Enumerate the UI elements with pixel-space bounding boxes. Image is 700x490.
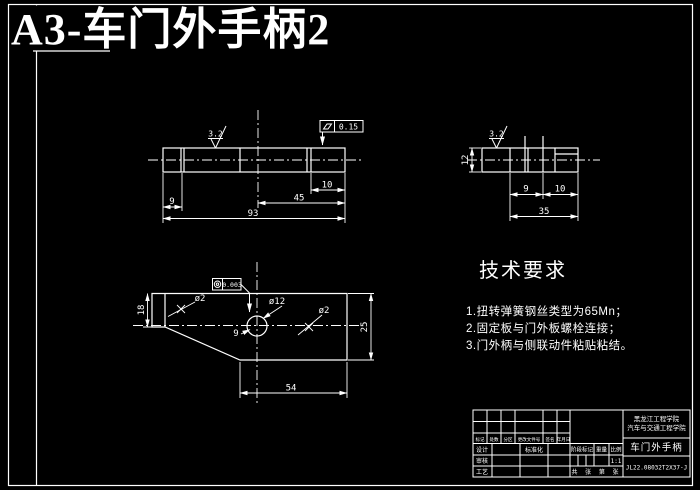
- title-block: 标记 处数 分区 更改文件号 签名 年月日 设计 标准化 审核 工艺 阶段标记 …: [473, 410, 690, 477]
- roughness-value-end: 3.2: [489, 130, 504, 139]
- flatness-icon: [324, 124, 332, 129]
- label-change-doc: 更改文件号: [518, 436, 541, 443]
- dim-12-end: 12: [461, 155, 471, 166]
- cad-drawing-canvas: A3-车门外手柄2 3.2: [0, 0, 700, 490]
- dia-12-label: ø12: [269, 297, 285, 307]
- cad-drawing-sheet: A3-车门外手柄2 3.2: [0, 0, 700, 490]
- dim-9-side: 9: [169, 197, 174, 207]
- concentricity-value: 0.003: [222, 281, 242, 289]
- school-name-line1: 黑龙江工程学院: [634, 414, 680, 423]
- dia-2-right-label: ø2: [319, 306, 330, 316]
- school-name-line2: 汽车与交通工程学院: [627, 423, 686, 432]
- label-check: 审核: [476, 457, 488, 465]
- label-weight: 重量: [596, 446, 608, 454]
- label-scale: 比例: [610, 446, 622, 454]
- dia-2-left-label: ø2: [195, 294, 206, 304]
- label-stage: 阶段标记: [571, 446, 594, 454]
- roughness-value-side: 3.2: [208, 130, 223, 139]
- dim-10-end: 10: [555, 185, 566, 195]
- surface-roughness-symbol-side: 3.2: [208, 126, 226, 148]
- top-view-extension-lines: [143, 294, 374, 399]
- part-name: 车门外手柄: [630, 442, 683, 454]
- sheet-info: 共 张 第 张: [571, 468, 621, 476]
- label-zone: 分区: [504, 436, 513, 443]
- label-sign: 签名: [546, 436, 555, 443]
- side-view: 3.2 0.15 10 45 9 93: [148, 110, 363, 223]
- concentricity-tolerance-frame: 0.003: [213, 279, 250, 313]
- dim-93-side: 93: [248, 209, 259, 219]
- drawing-title: A3-车门外手柄2: [11, 5, 330, 54]
- tech-requirement-item-3: 3.门外柄与侧联动件粘贴粘结。: [466, 338, 633, 352]
- label-process: 工艺: [476, 468, 488, 476]
- surface-roughness-symbol-end: 3.2: [489, 126, 507, 148]
- tech-requirements-heading: 技术要求: [479, 259, 567, 282]
- dim-9-end: 9: [523, 185, 528, 195]
- dim-25-top: 25: [360, 322, 370, 333]
- label-count: 处数: [490, 436, 499, 443]
- dim-45-side: 45: [294, 194, 305, 204]
- end-view-outline: [482, 136, 578, 172]
- concentricity-icon: [214, 281, 220, 287]
- label-standardize: 标准化: [525, 446, 543, 454]
- label-mark: 标记: [476, 436, 485, 443]
- label-design: 设计: [476, 446, 488, 454]
- drawing-number: JL22.08032T2X37-J: [626, 465, 687, 472]
- dim-18-top: 18: [137, 305, 147, 316]
- end-view: 3.2 12 9 10 35: [461, 126, 600, 221]
- tech-requirements: 技术要求 1.扭转弹簧钢丝类型为65Mn； 2.固定板与门外板螺栓连接； 3.门…: [466, 259, 633, 352]
- tech-requirement-item-1: 1.扭转弹簧钢丝类型为65Mn；: [466, 304, 627, 318]
- top-view-centerlines: [133, 262, 360, 403]
- dim-9-top: 9: [233, 329, 238, 339]
- tech-requirement-item-2: 2.固定板与门外板螺栓连接；: [466, 321, 621, 335]
- label-date: 年月日: [557, 436, 571, 443]
- sheet-border: [9, 5, 693, 486]
- dim-35-end: 35: [539, 207, 550, 217]
- flatness-tolerance-frame: 0.15: [320, 121, 363, 146]
- dim-10-side: 10: [322, 181, 333, 191]
- flatness-value: 0.15: [339, 123, 358, 132]
- dim-54-top: 54: [286, 384, 297, 394]
- scale-value: 1:1: [611, 458, 622, 465]
- top-view: 0.003 ø12 ø2 ø2 9: [133, 262, 374, 403]
- side-view-centerlines: [148, 110, 362, 208]
